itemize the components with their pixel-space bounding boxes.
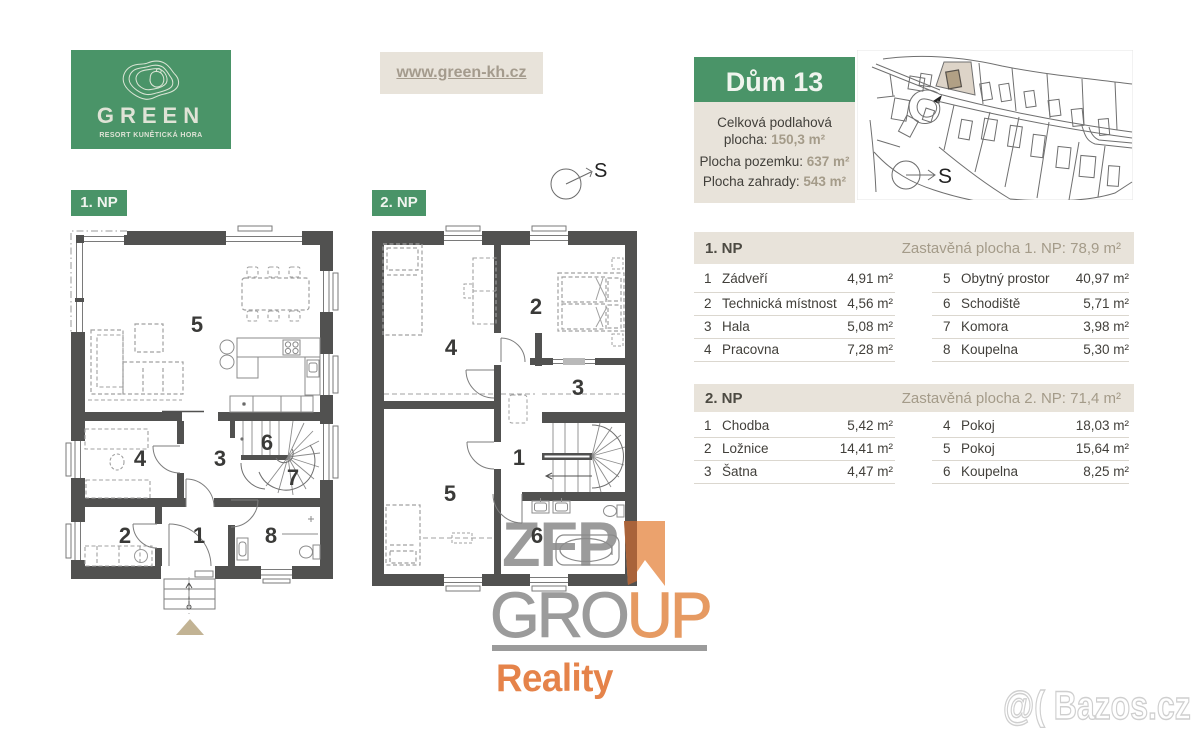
svg-text:1: 1 [513, 445, 525, 470]
svg-text:3: 3 [214, 446, 226, 471]
svg-text:GREEN: GREEN [97, 103, 205, 128]
svg-text:S: S [938, 165, 952, 188]
svg-text:3: 3 [572, 375, 584, 400]
svg-text:4: 4 [134, 446, 147, 471]
svg-text:6: 6 [531, 523, 543, 548]
svg-text:4: 4 [445, 335, 458, 360]
svg-text:8: 8 [265, 523, 277, 548]
svg-text:7: 7 [287, 465, 299, 490]
svg-text:6: 6 [261, 430, 273, 455]
svg-text:1: 1 [193, 523, 205, 548]
svg-text:5: 5 [191, 312, 203, 337]
svg-text:RESORT KUNĚTICKÁ HORA: RESORT KUNĚTICKÁ HORA [99, 130, 202, 139]
svg-text:2: 2 [119, 523, 131, 548]
svg-text:2: 2 [530, 294, 542, 319]
svg-text:5: 5 [444, 481, 456, 506]
svg-text:S: S [594, 160, 607, 182]
